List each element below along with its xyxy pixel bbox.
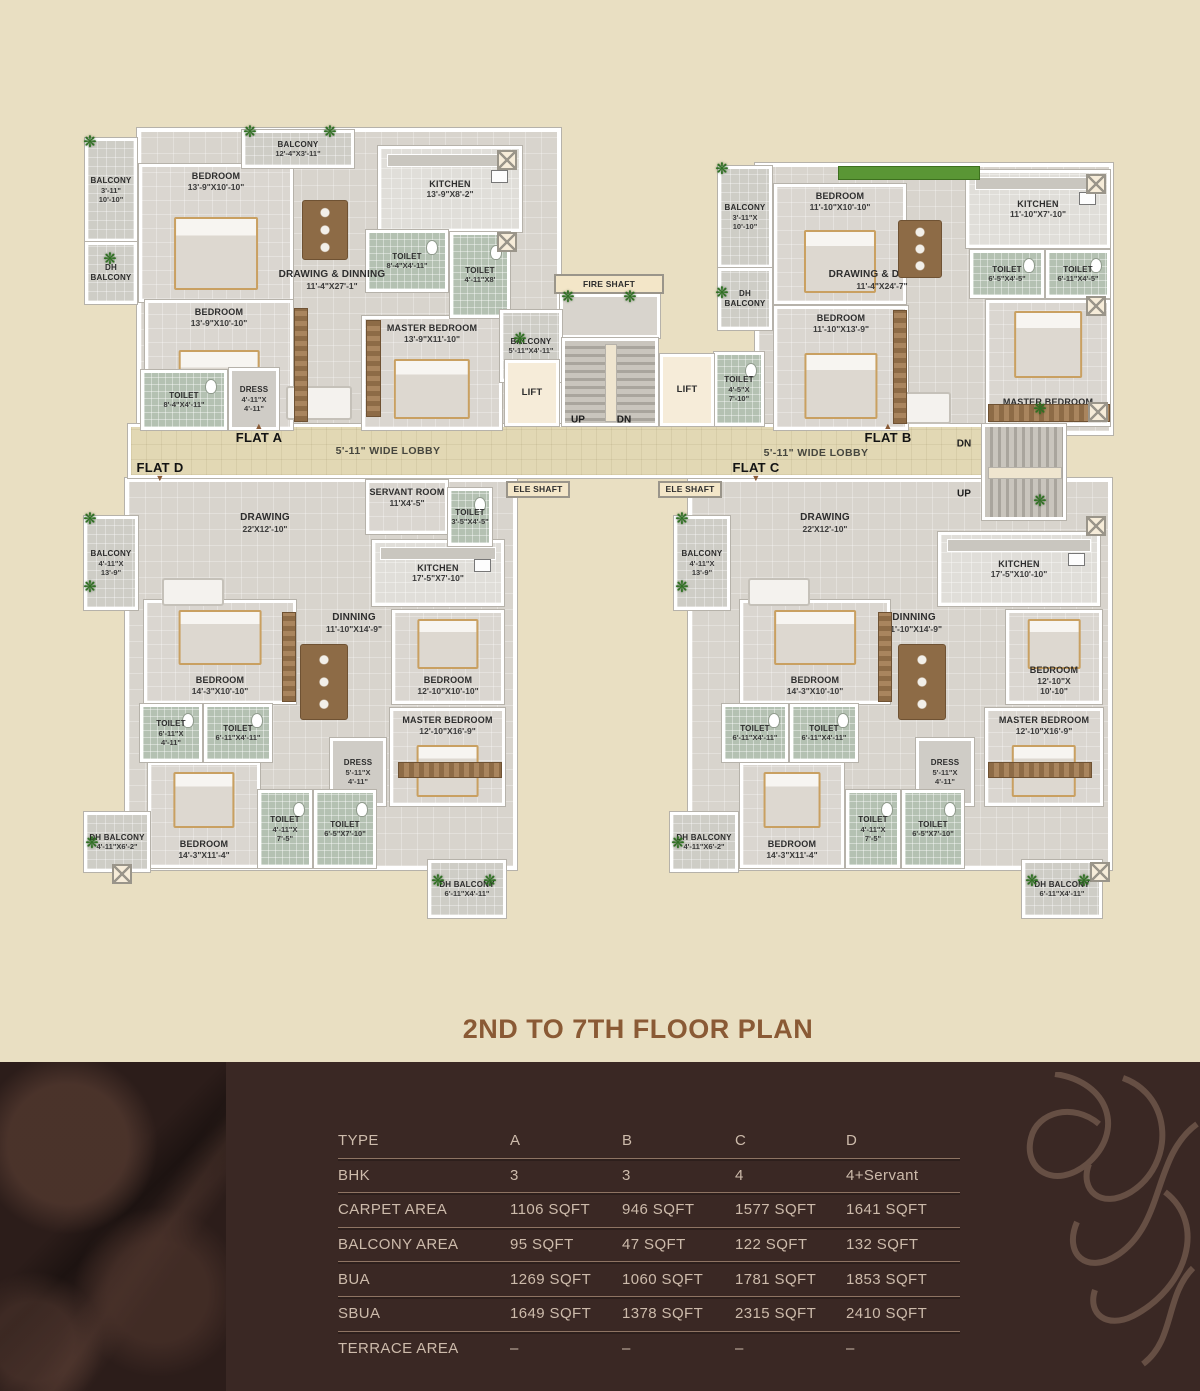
room-name: BALCONY (682, 549, 723, 559)
room-label: LIFT (677, 384, 698, 395)
room-name: KITCHEN (991, 559, 1048, 570)
room-label: BALCONY3'-11"X10'-10" (725, 203, 766, 231)
bedroom-room: BEDROOM11'-10"X13'-9" (774, 306, 908, 430)
room-name: DRESS (344, 758, 373, 768)
cell-bua-a: 1269 SQFT (510, 1271, 622, 1288)
room-dimensions: 10'-10" (725, 222, 766, 231)
room-label: TOILET8'-4"X4'-11" (163, 391, 204, 410)
room-dimensions: 12'-10"X16'-9" (999, 726, 1089, 736)
plant-icon: ❋ (83, 835, 101, 853)
table-row-sbua: SBUA1649 SQFT1378 SQFT2315 SQFT2410 SQFT (338, 1297, 960, 1332)
ele-shaft-room: ELE SHAFT (658, 481, 722, 498)
room-label: TOILET6'-5"X7'-10" (324, 820, 366, 839)
cell-carpet-area-d: 1641 SQFT (846, 1201, 960, 1218)
room-name: BEDROOM (813, 313, 869, 324)
cell-carpet-area-a: 1106 SQFT (510, 1201, 622, 1218)
room-label: BEDROOM14'-3"X10'-10" (192, 675, 249, 696)
cell-type-a: A (510, 1132, 622, 1149)
room-name: DRESS (931, 758, 960, 768)
room-name: ELE SHAFT (665, 484, 714, 494)
balcony-room: BALCONY3'-11"X10'-10" (718, 166, 772, 268)
room-dimensions: 4'-11" (344, 777, 373, 786)
column-marker-icon (112, 864, 132, 884)
cell-bhk-d: 4+Servant (846, 1167, 960, 1184)
plant-icon: ❋ (713, 161, 731, 179)
kitchen-counter-icon (947, 539, 1091, 552)
toilet-room: TOILET4'-11"X7'-5" (846, 790, 900, 868)
room-label: DRESS4'-11"X4'-11" (240, 385, 269, 413)
bed-icon (174, 217, 258, 290)
table-row-terrace-area: TERRACE AREA–––– (338, 1332, 960, 1366)
room-dimensions: 4'-5"X (724, 385, 754, 394)
room-dimensions: 4'-11"X8' (465, 275, 496, 284)
toilet-room: TOILET3'-5"X4'-5" (448, 488, 492, 546)
plant-icon: ❋ (1031, 493, 1049, 511)
bedroom-room: BEDROOM12'-10"X10'-10" (1006, 610, 1102, 704)
cell-bua-b: 1060 SQFT (622, 1271, 735, 1288)
room-dimensions: 4'-11" (240, 404, 269, 413)
room-label: SERVANT ROOM11'X4'-5" (369, 487, 444, 508)
plant-icon: ❋ (241, 124, 259, 142)
room-name: BEDROOM (178, 839, 229, 850)
room-label: DRAWING22'X12'-10" (240, 512, 290, 534)
room-dimensions: 13'-9" (682, 568, 723, 577)
column-marker-icon (1086, 516, 1106, 536)
room-dimensions: 7'-5" (270, 834, 300, 843)
bed-icon (774, 610, 856, 665)
flat-label-flat-a: ▲FLAT A (236, 423, 283, 445)
room-label: BEDROOM14'-3"X11'-4" (766, 839, 817, 860)
toilet-wc-icon (205, 379, 217, 394)
row-label: BALCONY AREA (338, 1236, 510, 1253)
room-label: DRESS5'-11"X4'-11" (931, 758, 960, 786)
room-name: DRAWING (240, 512, 290, 524)
toilet-room: TOILET6'-11"X4'-5" (1046, 250, 1110, 298)
column-marker-icon (1086, 296, 1106, 316)
lobby-width-label: 5'-11" WIDE LOBBY (764, 447, 869, 459)
plant-icon: ❋ (429, 873, 447, 891)
room-dimensions: 5'-11"X (931, 768, 960, 777)
room-dimensions: 11'-4"X27'-1" (279, 281, 386, 291)
toilet-room: TOILET6'-11"X4'-11" (790, 704, 858, 762)
room-name: MASTER BEDROOM (402, 715, 492, 726)
room-name: BEDROOM (192, 675, 249, 686)
room-label: BEDROOM13'-9"X10'-10" (188, 171, 245, 192)
room-name: MASTER BEDROOM (999, 715, 1089, 726)
room-name: BALCONY (91, 549, 132, 559)
flat-label-text: FLAT A (236, 430, 283, 445)
room-name: TOILET (802, 724, 847, 734)
area-table: TYPEABCDBHK3344+ServantCARPET AREA1106 S… (338, 1124, 960, 1365)
table-row-bhk: BHK3344+Servant (338, 1159, 960, 1194)
room-dimensions: 6'-5"X4'-5" (988, 274, 1025, 283)
room-name: BALCONY (725, 203, 766, 213)
cell-bua-c: 1781 SQFT (735, 1271, 846, 1288)
cell-bhk-b: 3 (622, 1167, 735, 1184)
lift-room: LIFT (505, 360, 559, 426)
column-marker-icon (497, 232, 517, 252)
room-name: KITCHEN (426, 179, 473, 190)
room-name: DRESS (240, 385, 269, 395)
dinning-room: DINNING11'-10"X14'-9" (848, 606, 980, 640)
plant-icon: ❋ (673, 511, 691, 529)
toilet-room: TOILET6'-11"X4'-11" (140, 704, 202, 762)
footer: TYPEABCDBHK3344+ServantCARPET AREA1106 S… (0, 1062, 1200, 1391)
entry-marker-icon: ▲ (864, 423, 911, 430)
room-name: TOILET (324, 820, 366, 830)
room-dimensions: 7'-5" (858, 834, 888, 843)
room-dimensions: 10'-10" (91, 195, 132, 204)
plant-icon: ❋ (713, 285, 731, 303)
stove-icon (474, 559, 491, 572)
room-name: KITCHEN (1010, 199, 1066, 210)
room-name: TOILET (163, 391, 204, 401)
plant-icon: ❋ (511, 331, 529, 349)
room-name: TOILET (733, 724, 778, 734)
room-dimensions: 6'-5"X7'-10" (324, 829, 366, 838)
room-label: MASTER BEDROOM12'-10"X16'-9" (999, 715, 1089, 736)
flat-label-text: FLAT B (864, 430, 911, 445)
planter-icon (838, 166, 980, 180)
room-name: FIRE SHAFT (583, 279, 635, 289)
room-dimensions: 3'-11"X (725, 213, 766, 222)
room-dimensions: 14'-3"X11'-4" (178, 850, 229, 860)
cell-bhk-a: 3 (510, 1167, 622, 1184)
flat-label-flat-c: FLAT C▼ (732, 460, 779, 482)
room-dimensions: 6'-11"X4'-11" (216, 733, 261, 742)
room-dimensions: 5'-11"X (344, 768, 373, 777)
cell-terrace-area-a: – (510, 1340, 622, 1357)
room-dimensions: 4'-11"X (682, 559, 723, 568)
room-name: TOILET (858, 815, 888, 825)
room-name: LIFT (677, 384, 698, 395)
room-dimensions: 8'-4"X4'-11" (163, 400, 204, 409)
lift-room: LIFT (660, 354, 714, 426)
column-marker-icon (497, 150, 517, 170)
room-dimensions: 12'-10"X16'-9" (402, 726, 492, 736)
stair-direction-label: UP (571, 415, 585, 426)
room-dimensions: 6'-11"X (156, 729, 186, 738)
room-label: BALCONY12'-4"X3'-11" (275, 140, 320, 159)
wardrobe-icon (988, 762, 1092, 778)
dinning-room: DINNING11'-10"X14'-9" (288, 606, 420, 640)
floor-plan: BEDROOM13'-9"X10'-10"BEDROOM13'-9"X10'-1… (0, 0, 1200, 1062)
room-dimensions: 14'-3"X10'-10" (787, 686, 844, 696)
row-label: CARPET AREA (338, 1201, 510, 1218)
flat-label-flat-d: FLAT D▼ (136, 460, 183, 482)
plant-icon: ❋ (1031, 401, 1049, 419)
room-dimensions: 11'-10"X10'-10" (810, 202, 871, 212)
entry-marker-icon: ▼ (136, 475, 183, 482)
cell-type-b: B (622, 1132, 735, 1149)
room-label: BALCONY4'-11"X13'-9" (91, 549, 132, 577)
ele-shaft-room: ELE SHAFT (506, 481, 570, 498)
room-dimensions: 22'X12'-10" (800, 524, 850, 534)
room-dimensions: 12'-10"X (1030, 676, 1078, 686)
toilet-room: TOILET6'-11"X4'-11" (722, 704, 788, 762)
room-name: BEDROOM (787, 675, 844, 686)
room-dimensions: 11'-10"X7'-10" (1010, 209, 1066, 219)
cell-balcony-area-b: 47 SQFT (622, 1236, 735, 1253)
room-name: TOILET (156, 719, 186, 729)
master-bedroom-room: MASTER BEDROOM12'-10"X16'-9" (390, 708, 505, 806)
room-label: DINNING11'-10"X14'-9" (326, 612, 382, 634)
room-name: LIFT (522, 387, 543, 398)
page-title: 2ND TO 7TH FLOOR PLAN (0, 1014, 1200, 1045)
row-label: BUA (338, 1271, 510, 1288)
room-label: BALCONY3'-11"10'-10" (91, 176, 132, 204)
plant-icon: ❋ (481, 873, 499, 891)
room-label: BEDROOM14'-3"X11'-4" (178, 839, 229, 860)
cell-terrace-area-d: – (846, 1340, 960, 1357)
room-label: BALCONY4'-11"X13'-9" (682, 549, 723, 577)
plant-icon: ❋ (101, 251, 119, 269)
room-name: SERVANT ROOM (369, 487, 444, 498)
cell-sbua-b: 1378 SQFT (622, 1305, 735, 1322)
bed-icon (1014, 311, 1082, 377)
toilet-wc-icon (356, 802, 368, 817)
room-label: KITCHEN17'-5"X10'-10" (991, 559, 1048, 580)
flat-label-flat-b: ▲FLAT B (864, 423, 911, 445)
stair-landing (988, 467, 1062, 480)
room-dimensions: 7'-10" (724, 394, 754, 403)
bedroom-room: BEDROOM14'-3"X11'-4" (148, 762, 260, 868)
room-name: BALCONY (91, 176, 132, 186)
table-row-bua: BUA1269 SQFT1060 SQFT1781 SQFT1853 SQFT (338, 1262, 960, 1297)
room-dimensions: 10'-10" (1030, 686, 1078, 696)
stove-icon (1068, 553, 1085, 566)
room-dimensions: 4'-11"X (240, 395, 269, 404)
plant-icon: ❋ (673, 579, 691, 597)
bed-icon (804, 353, 877, 418)
wardrobe-icon (398, 762, 502, 778)
table-row-type: TYPEABCD (338, 1124, 960, 1159)
room-label: MASTER BEDROOM12'-10"X16'-9" (402, 715, 492, 736)
room-label: DRAWING & DINNING11'-4"X27'-1" (279, 269, 386, 291)
bedroom-room: BEDROOM14'-3"X11'-4" (740, 762, 844, 868)
column-marker-icon (1086, 174, 1106, 194)
kitchen-room: KITCHEN17'-5"X10'-10" (938, 532, 1100, 606)
room-label: DRESS5'-11"X4'-11" (344, 758, 373, 786)
room-label: TOILET6'-5"X7'-10" (912, 820, 954, 839)
room-name: DRAWING & DINNING (279, 269, 386, 281)
room-label: BEDROOM11'-10"X13'-9" (813, 313, 869, 334)
room-name: TOILET (270, 815, 300, 825)
carving-decor (0, 1062, 226, 1391)
cell-sbua-d: 2410 SQFT (846, 1305, 960, 1322)
room-name: DINNING (326, 612, 382, 624)
cell-bua-d: 1853 SQFT (846, 1271, 960, 1288)
room-name: KITCHEN (412, 563, 464, 574)
cell-sbua-c: 2315 SQFT (735, 1305, 846, 1322)
toilet-room: TOILET4'-5"X7'-10" (714, 352, 764, 426)
room-dimensions: 13'-9"X10'-10" (191, 318, 248, 328)
room-label: TOILET4'-5"X7'-10" (724, 375, 754, 403)
room-dimensions: 14'-3"X10'-10" (192, 686, 249, 696)
drawing-room: DRAWING22'X12'-10" (185, 505, 345, 541)
toilet-room: TOILET6'-5"X7'-10" (902, 790, 964, 868)
stairs-v (562, 338, 658, 426)
room-label: KITCHEN17'-5"X7'-10" (412, 563, 464, 584)
room-dimensions: 3'-5"X4'-5" (451, 517, 488, 526)
wardrobe-icon (893, 310, 907, 424)
room-label: TOILET6'-11"X4'-5" (1057, 265, 1098, 284)
room-dimensions: 12'-10"X10'-10" (417, 686, 478, 696)
room-name: DINNING (886, 612, 942, 624)
room-name: TOILET (912, 820, 954, 830)
row-label: BHK (338, 1167, 510, 1184)
cell-type-c: C (735, 1132, 846, 1149)
room-dimensions: 4'-11" (156, 738, 186, 747)
room-label: LIFT (522, 387, 543, 398)
bed-icon (1028, 619, 1081, 669)
room-name: TOILET (1057, 265, 1098, 275)
cell-balcony-area-a: 95 SQFT (510, 1236, 622, 1253)
master-bedroom-room: MASTER BEDROOM12'-10"X16'-9" (985, 708, 1103, 806)
toilet-wc-icon (426, 240, 438, 255)
cell-balcony-area-c: 122 SQFT (735, 1236, 846, 1253)
monogram-icon (1015, 1072, 1200, 1372)
plant-icon: ❋ (1075, 873, 1093, 891)
room-label: TOILET6'-11"X4'-11" (802, 724, 847, 743)
room-label: DRAWING22'X12'-10" (800, 512, 850, 534)
bed-icon (179, 610, 262, 665)
plant-icon: ❋ (669, 835, 687, 853)
room-label: TOILET6'-5"X4'-5" (988, 265, 1025, 284)
room-label: ELE SHAFT (513, 484, 562, 494)
cell-carpet-area-b: 946 SQFT (622, 1201, 735, 1218)
plant-icon: ❋ (81, 579, 99, 597)
row-label: TERRACE AREA (338, 1340, 510, 1357)
room-label: KITCHEN13'-9"X8'-2" (426, 179, 473, 200)
room-dimensions: 4'-11"X (270, 825, 300, 834)
dining-table-icon (302, 200, 348, 260)
dining-table-icon (898, 220, 942, 278)
entry-marker-icon: ▲ (236, 423, 283, 430)
room-dimensions: 13'-9"X11'-10" (387, 334, 477, 344)
plant-icon: ❋ (321, 124, 339, 142)
room-name: BEDROOM (417, 675, 478, 686)
room-dimensions: 6'-11"X4'-11" (802, 733, 847, 742)
room-name: ELE SHAFT (513, 484, 562, 494)
column-marker-icon (1090, 862, 1110, 882)
stair-direction-label: UP (957, 489, 971, 500)
cell-type-d: D (846, 1132, 960, 1149)
drawing-dinning-room: DRAWING & DINNING11'-4"X27'-1" (252, 258, 412, 302)
cell-carpet-area-c: 1577 SQFT (735, 1201, 846, 1218)
room-dimensions: 17'-5"X10'-10" (991, 569, 1048, 579)
room-label: TOILET3'-5"X4'-5" (451, 508, 488, 527)
room-dimensions: 12'-4"X3'-11" (275, 149, 320, 158)
room-dimensions: 11'-10"X14'-9" (886, 624, 942, 634)
row-label: SBUA (338, 1305, 510, 1322)
room-dimensions: 13'-9"X8'-2" (426, 189, 473, 199)
column-marker-icon (1088, 402, 1108, 422)
room-dimensions: 3'-11" (91, 186, 132, 195)
room-label: ELE SHAFT (665, 484, 714, 494)
plant-icon: ❋ (1023, 873, 1041, 891)
room-name: TOILET (988, 265, 1025, 275)
room-label: DINNING11'-10"X14'-9" (886, 612, 942, 634)
cell-terrace-area-c: – (735, 1340, 846, 1357)
room-label: TOILET4'-11"X7'-5" (270, 815, 300, 843)
wardrobe-icon (366, 320, 381, 417)
cell-terrace-area-b: – (622, 1340, 735, 1357)
room-label: MASTER BEDROOM13'-9"X11'-10" (387, 323, 477, 344)
brochure-page: BEDROOM13'-9"X10'-10"BEDROOM13'-9"X10'-1… (0, 0, 1200, 1391)
room-name: TOILET (216, 724, 261, 734)
stairs-h (982, 424, 1066, 520)
cell-balcony-area-d: 132 SQFT (846, 1236, 960, 1253)
toilet-room: TOILET6'-5"X4'-5" (970, 250, 1044, 298)
cell-sbua-a: 1649 SQFT (510, 1305, 622, 1322)
room-dimensions: 4'-11" (931, 777, 960, 786)
room-name: TOILET (465, 266, 496, 276)
wardrobe-icon (294, 308, 308, 422)
room-name: TOILET (451, 508, 488, 518)
room-dimensions: 6'-11"X4'-11" (733, 733, 778, 742)
room-label: BEDROOM14'-3"X10'-10" (787, 675, 844, 696)
room-dimensions: 6'-11"X4'-5" (1057, 274, 1098, 283)
room-name: MASTER BEDROOM (387, 323, 477, 334)
room-label: BEDROOM12'-10"X10'-10" (1030, 665, 1078, 696)
room-label: BEDROOM13'-9"X10'-10" (191, 307, 248, 328)
room-label: BEDROOM12'-10"X10'-10" (417, 675, 478, 696)
bed-icon (417, 619, 478, 669)
kitchen-room: KITCHEN17'-5"X7'-10" (372, 540, 504, 606)
sofa-icon (748, 578, 810, 606)
balcony-room: BALCONY3'-11"10'-10" (85, 138, 137, 242)
dining-table-icon (300, 644, 348, 720)
room-name: BEDROOM (191, 307, 248, 318)
plant-icon: ❋ (559, 289, 577, 307)
table-row-carpet-area: CARPET AREA1106 SQFT946 SQFT1577 SQFT164… (338, 1193, 960, 1228)
room-dimensions: 4'-11"X (858, 825, 888, 834)
servant-room-room: SERVANT ROOM11'X4'-5" (366, 480, 448, 534)
room-dimensions: 11'-4"X24'-7" (829, 281, 936, 291)
room-label: FIRE SHAFT (583, 279, 635, 289)
room-dimensions: 13'-9"X10'-10" (188, 182, 245, 192)
cell-bhk-c: 4 (735, 1167, 846, 1184)
room-name: DRAWING (800, 512, 850, 524)
wardrobe-icon (878, 612, 892, 702)
dining-table-icon (898, 644, 946, 720)
wardrobe-icon (282, 612, 296, 702)
table-row-balcony-area: BALCONY AREA95 SQFT47 SQFT122 SQFT132 SQ… (338, 1228, 960, 1263)
room-label: TOILET4'-11"X8' (465, 266, 496, 285)
room-name: TOILET (724, 375, 754, 385)
bed-icon (394, 359, 470, 419)
room-label: KITCHEN11'-10"X7'-10" (1010, 199, 1066, 220)
kitchen-counter-icon (387, 154, 514, 167)
room-dimensions: 11'X4'-5" (369, 498, 444, 508)
toilet-room: TOILET4'-11"X7'-5" (258, 790, 312, 868)
room-dimensions: 13'-9" (91, 568, 132, 577)
room-dimensions: 22'X12'-10" (240, 524, 290, 534)
toilet-room: TOILET8'-4"X4'-11" (141, 370, 227, 430)
room-label: TOILET6'-11"X4'-11" (733, 724, 778, 743)
room-name: BEDROOM (810, 191, 871, 202)
toilet-room: TOILET6'-5"X7'-10" (314, 790, 376, 868)
room-label: TOILET6'-11"X4'-11" (216, 724, 261, 743)
stair-landing (605, 344, 618, 421)
room-dimensions: 6'-5"X7'-10" (912, 829, 954, 838)
plant-icon: ❋ (81, 511, 99, 529)
room-dimensions: 4'-11"X (91, 559, 132, 568)
plant-icon: ❋ (621, 289, 639, 307)
kitchen-counter-icon (975, 177, 1102, 190)
bedroom-room: BEDROOM14'-3"X10'-10" (144, 600, 296, 704)
